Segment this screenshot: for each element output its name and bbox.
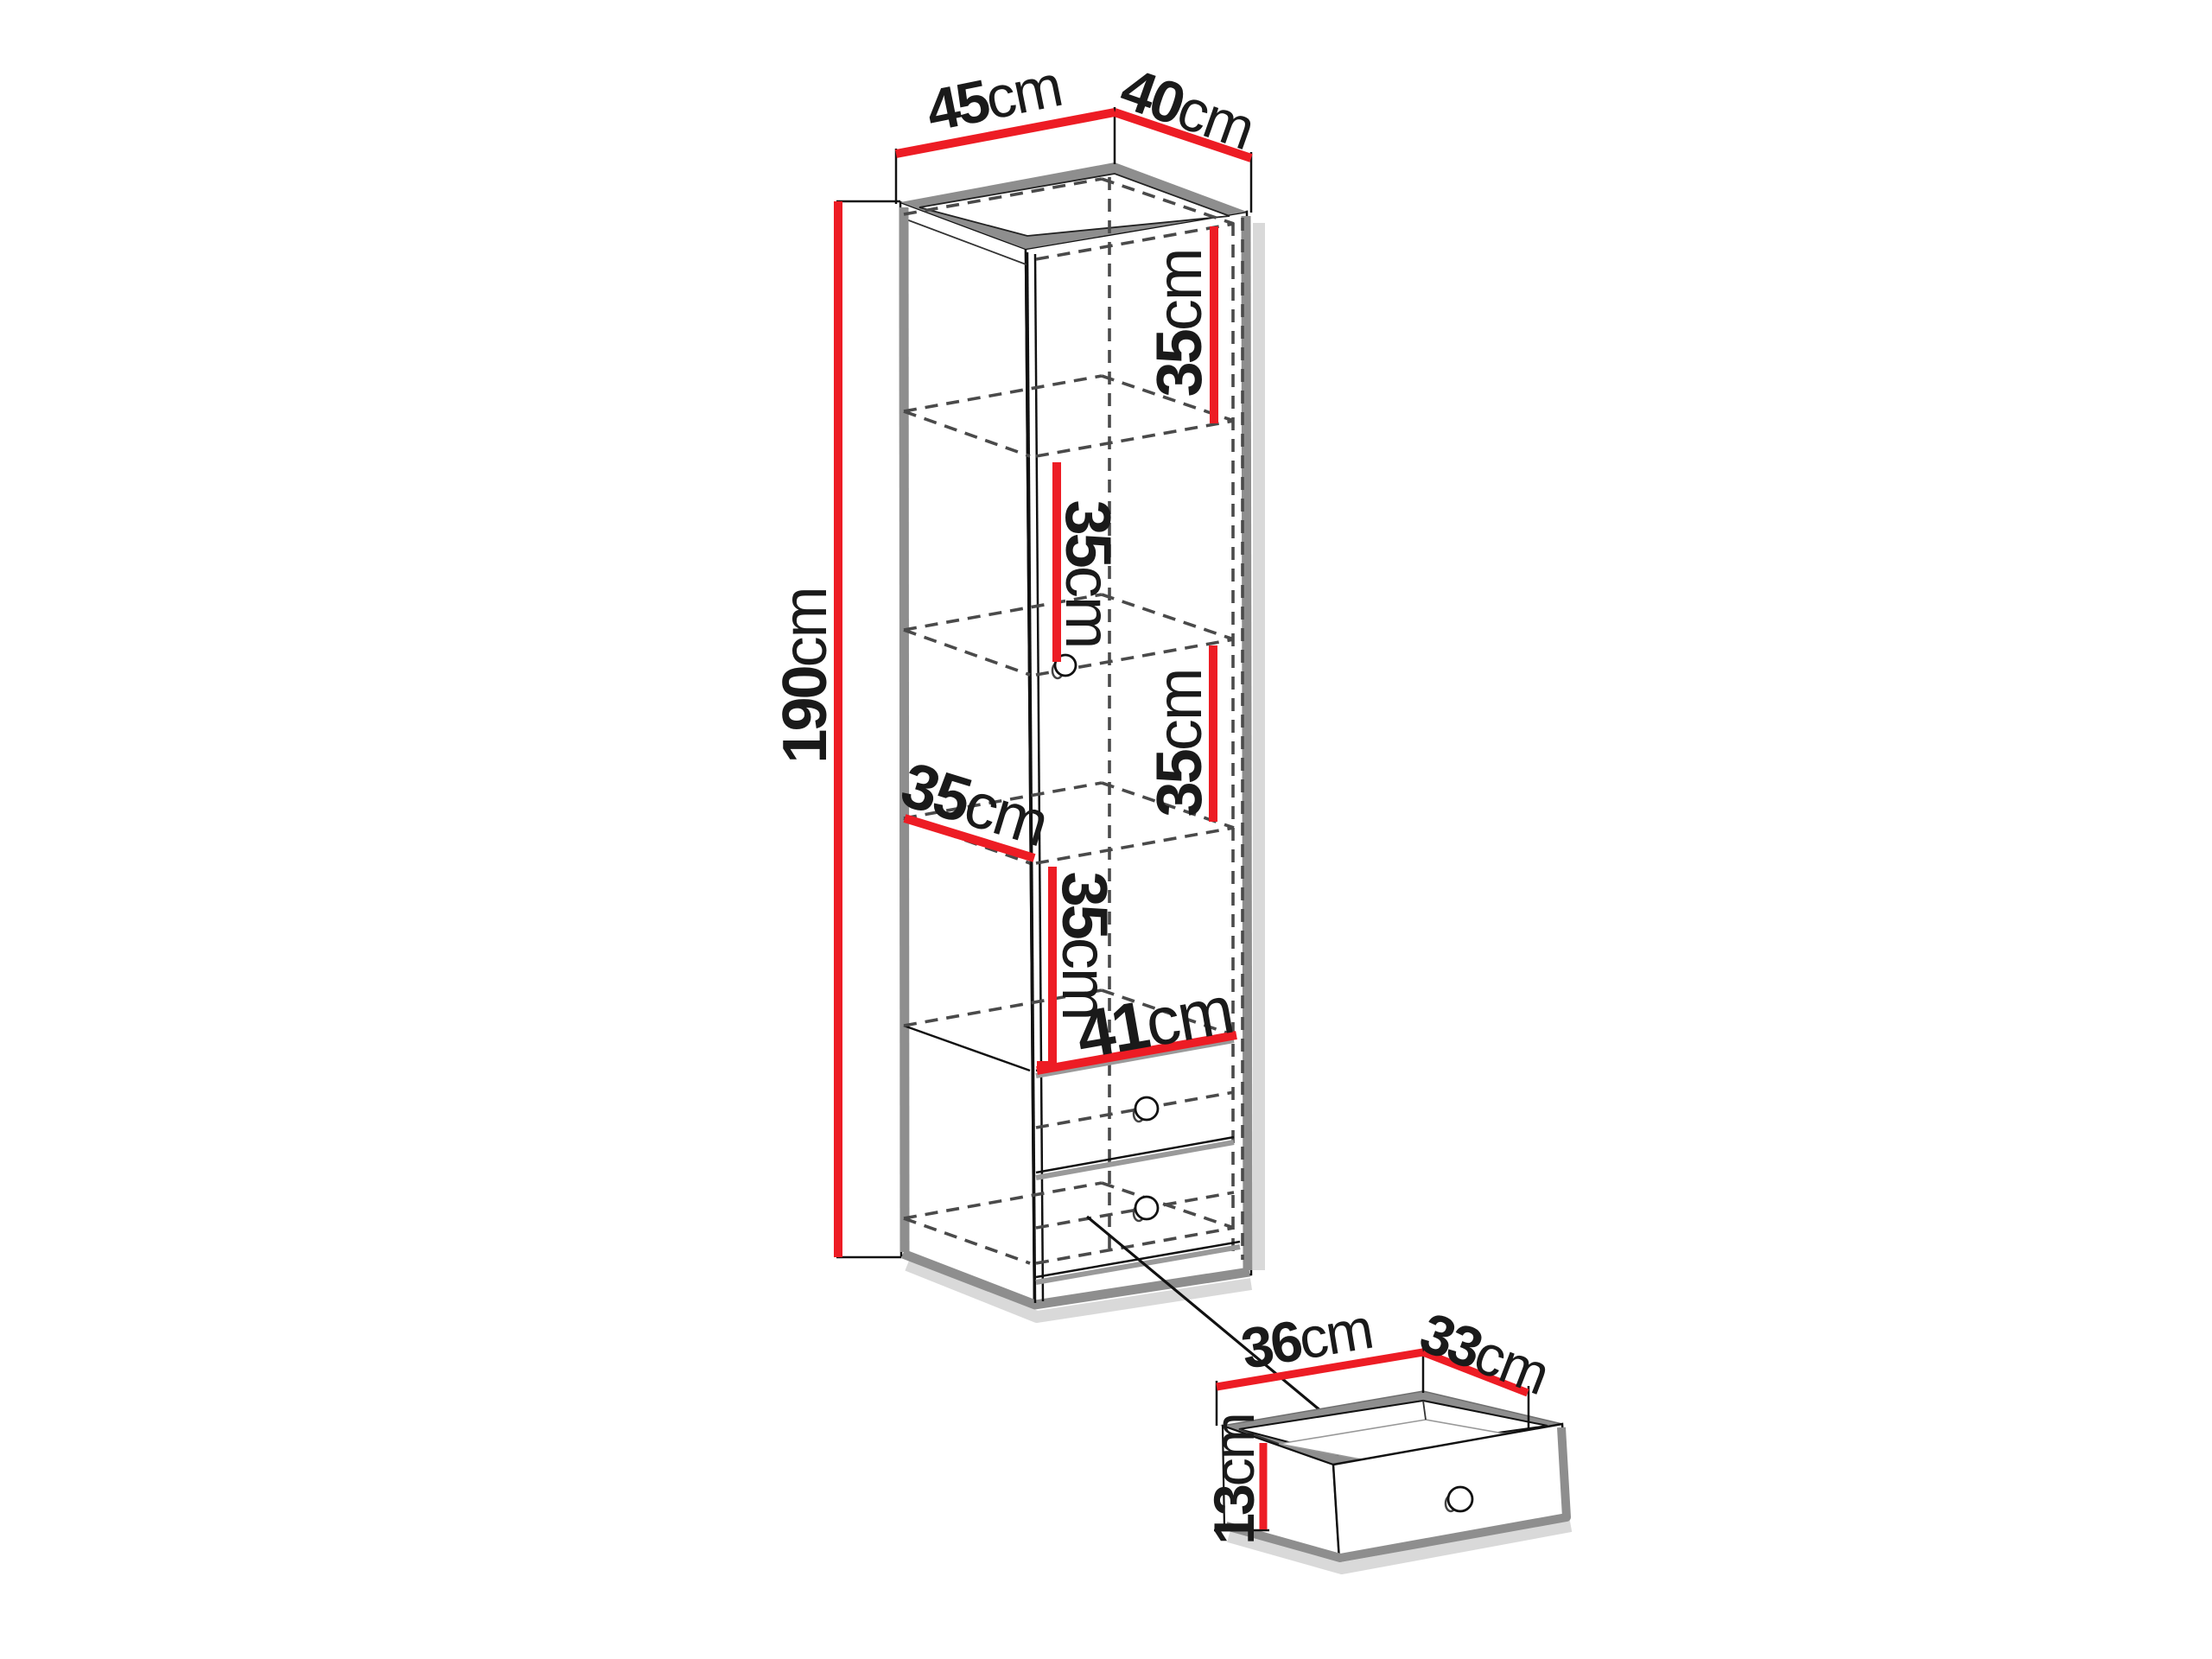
- edge-left: [904, 207, 905, 1252]
- furniture-dimension-diagram: 45cm 40cm 190cm 35cm 35cm 35cm 35cm 35cm…: [0, 0, 2212, 1659]
- dim-label-height: 190cm: [771, 588, 840, 763]
- dim-label-section-3: 35cm: [1143, 670, 1215, 817]
- dim-label-drawer-depth: 33cm: [1412, 1300, 1557, 1406]
- drawer-knob-top: [1135, 1097, 1158, 1120]
- dim-label-section-1: 35cm: [1143, 250, 1215, 397]
- cabinet-diagram-svg: 45cm 40cm 190cm 35cm 35cm 35cm 35cm 35cm…: [0, 0, 2212, 1659]
- drawer-knob-bottom: [1135, 1197, 1158, 1219]
- dim-label-top-depth: 40cm: [1113, 55, 1262, 162]
- dim-label-drawer-width: 36cm: [1236, 1296, 1376, 1381]
- dim-label-section-2: 35cm: [1053, 500, 1125, 648]
- edge-right: [1246, 216, 1248, 1270]
- dimension-labels: 45cm 40cm 190cm 35cm 35cm 35cm 35cm 35cm…: [771, 53, 1557, 1545]
- dim-label-top-width: 45cm: [921, 53, 1066, 144]
- dim-label-drawer-height: 13cm: [1202, 1414, 1266, 1544]
- drawer-detail-knob: [1448, 1487, 1472, 1511]
